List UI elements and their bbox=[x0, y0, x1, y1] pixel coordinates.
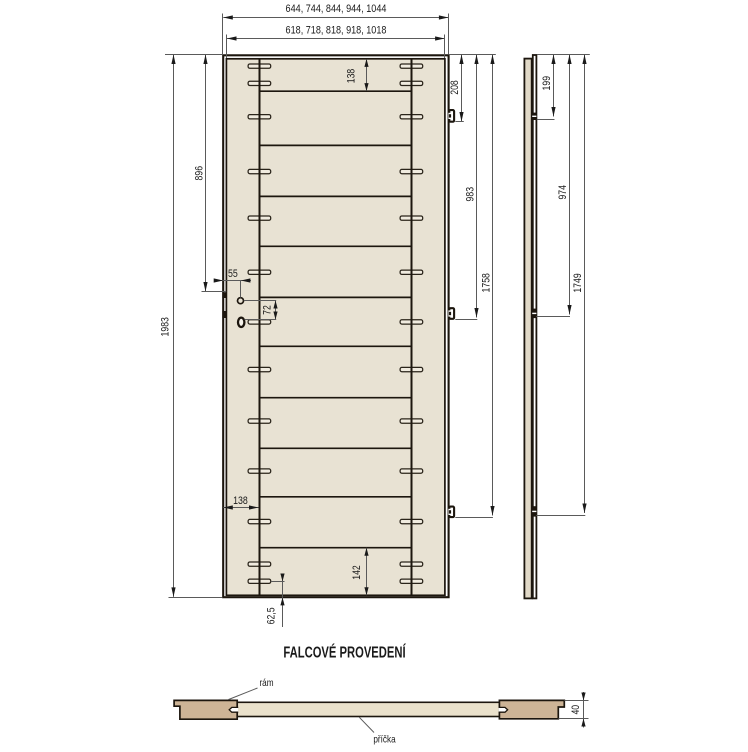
svg-text:55: 55 bbox=[228, 268, 238, 280]
svg-text:40: 40 bbox=[570, 704, 582, 714]
svg-text:983: 983 bbox=[465, 187, 477, 202]
svg-text:644, 744, 844, 944, 1044: 644, 744, 844, 944, 1044 bbox=[286, 3, 387, 15]
svg-text:896: 896 bbox=[194, 166, 206, 181]
svg-text:138: 138 bbox=[233, 495, 248, 507]
svg-text:1749: 1749 bbox=[572, 273, 584, 293]
svg-text:618, 718, 818, 918, 1018: 618, 718, 818, 918, 1018 bbox=[286, 25, 387, 37]
svg-text:199: 199 bbox=[541, 76, 553, 91]
svg-text:1758: 1758 bbox=[480, 273, 492, 293]
svg-text:142: 142 bbox=[351, 565, 363, 580]
svg-text:138: 138 bbox=[346, 68, 358, 83]
svg-text:rám: rám bbox=[259, 677, 273, 688]
svg-text:příčka: příčka bbox=[373, 734, 396, 745]
svg-text:FALCOVÉ PROVEDENÍ: FALCOVÉ PROVEDENÍ bbox=[283, 644, 406, 661]
svg-text:208: 208 bbox=[449, 80, 461, 95]
svg-text:72: 72 bbox=[262, 305, 274, 315]
svg-text:974: 974 bbox=[557, 185, 569, 200]
svg-text:1983: 1983 bbox=[159, 317, 171, 337]
svg-text:62,5: 62,5 bbox=[266, 607, 278, 624]
